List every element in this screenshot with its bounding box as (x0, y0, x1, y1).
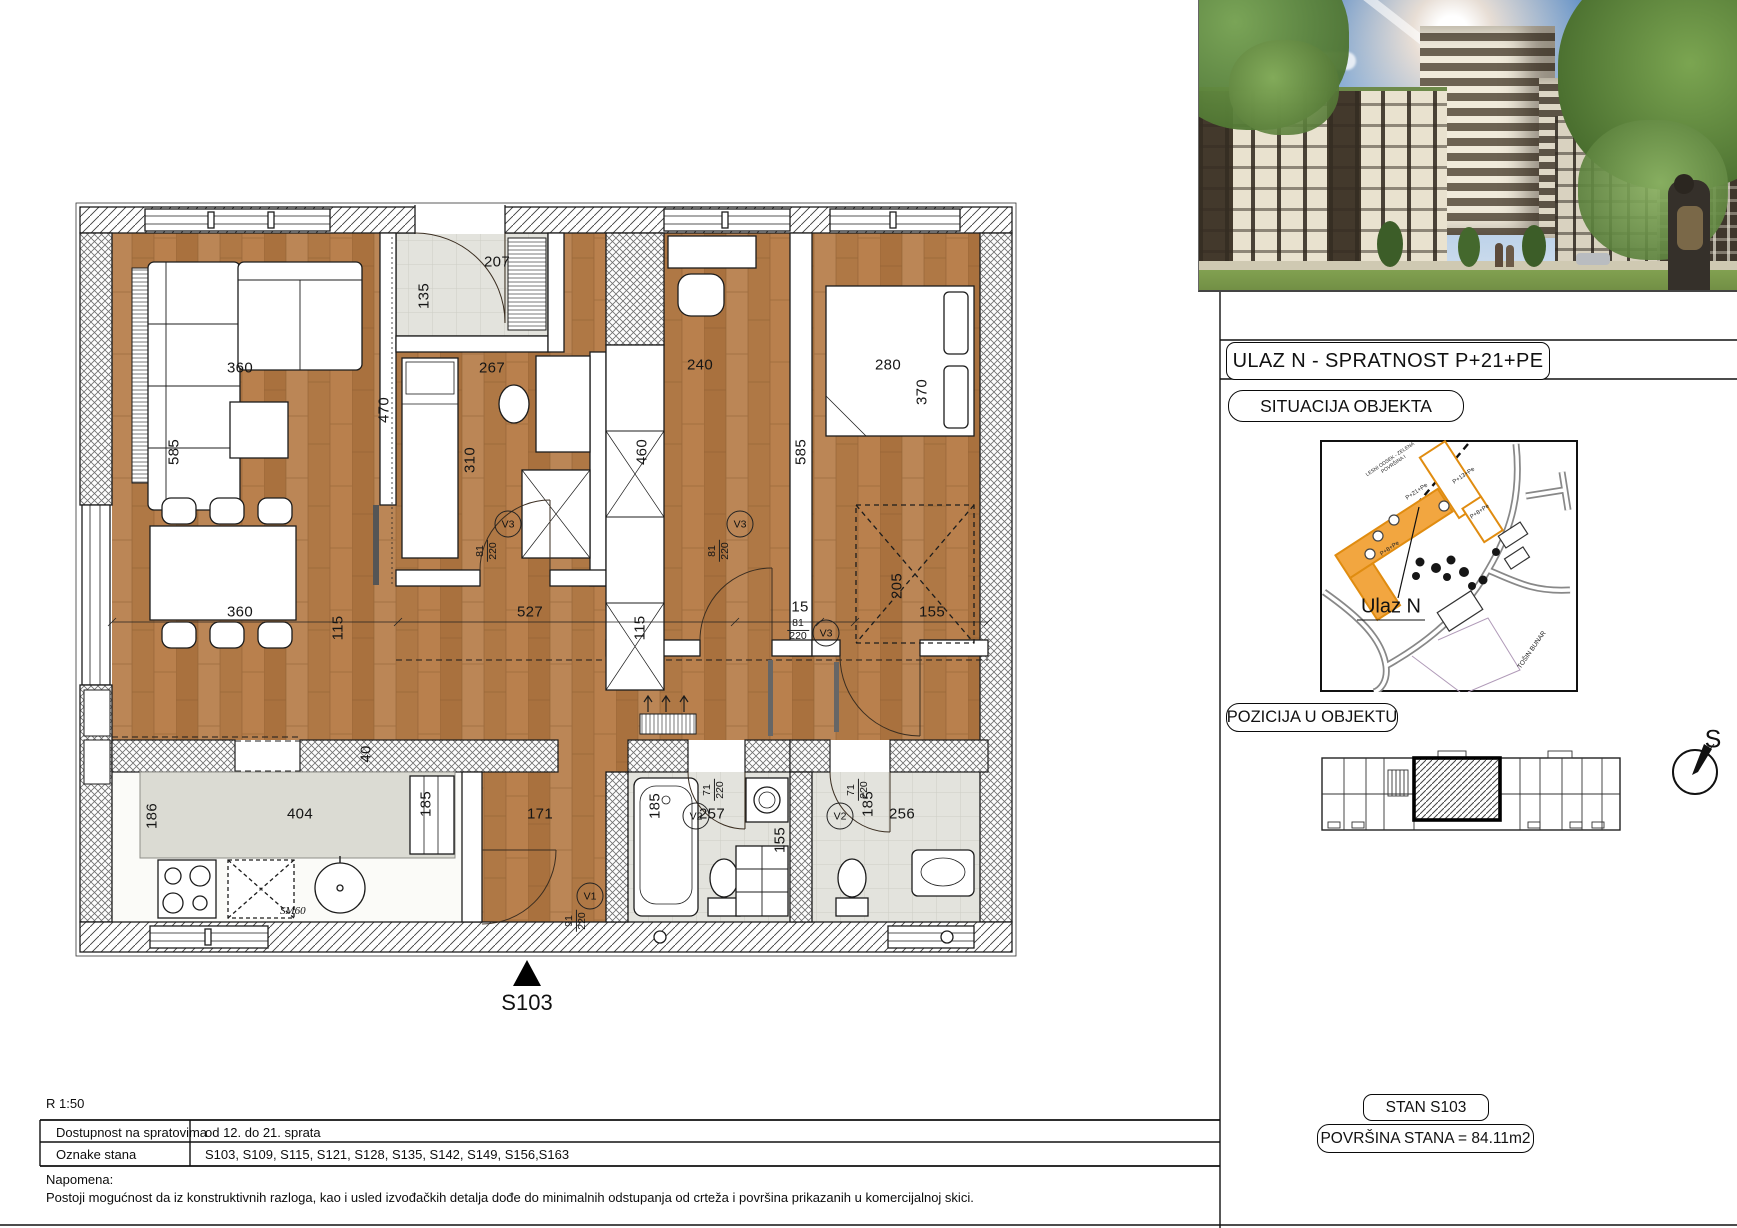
dimension-label: 360 (227, 604, 253, 621)
dimension-label: 310 (462, 447, 479, 473)
povrsina-label: POVRŠINA STANA = 84.11m2 (1317, 1124, 1534, 1153)
table-row1-label: Dostupnost na spratovima (56, 1125, 207, 1140)
dimension-label: 15 (791, 599, 808, 616)
car (1576, 253, 1610, 265)
backpack (1677, 206, 1703, 250)
dimension-label: 280 (875, 357, 901, 374)
table-row2-value: S103, S109, S115, S121, S128, S135, S142… (205, 1147, 569, 1162)
dimension-label: 135 (416, 283, 433, 309)
door-tag-v3: V3 (495, 511, 522, 538)
dimension-label: 527 (517, 604, 543, 621)
appliance-label: SM60 (280, 905, 306, 917)
dimension-label: 155 (919, 604, 945, 621)
door-size-label: 81220 (475, 540, 499, 562)
dimension-label: 360 (227, 360, 253, 377)
dimension-label: 185 (418, 791, 435, 817)
door-size-label: 81220 (707, 540, 731, 562)
dimension-label: 585 (166, 439, 183, 465)
stan-label: STAN S103 (1363, 1094, 1489, 1121)
tree-icon (1229, 40, 1339, 135)
dimension-label: 186 (144, 803, 161, 829)
unit-marker-label: S103 (501, 990, 552, 1016)
entrance-title: ULAZ N - SPRATNOST P+21+PE (1226, 342, 1550, 380)
drawing-sheet: 2071353602672402803704705853104605853605… (0, 0, 1737, 1228)
dimension-label: 404 (287, 806, 313, 823)
door-tag-v1: V1 (577, 883, 604, 910)
door-tag-v2: V2 (683, 803, 710, 830)
door-size-label: 91220 (564, 910, 588, 932)
dimension-label: 585 (793, 439, 810, 465)
door-tag-v3: V3 (813, 620, 840, 647)
table-row2-label: Oznake stana (56, 1147, 136, 1162)
door-tag-v2: V2 (827, 803, 854, 830)
building-photo (1198, 0, 1737, 292)
street-tree (1458, 227, 1480, 267)
position-diagram (1318, 748, 1630, 842)
dimension-label: 205 (889, 573, 906, 599)
compass-letter: S (1705, 726, 1722, 755)
dimension-label: 460 (634, 439, 651, 465)
dimension-label: 256 (889, 806, 915, 823)
scale-label: R 1:50 (46, 1096, 84, 1111)
dimension-label: 207 (484, 254, 510, 271)
dimension-label: 155 (772, 827, 789, 853)
person-small (1506, 245, 1514, 267)
person-small (1495, 243, 1503, 267)
dimension-label: 240 (687, 357, 713, 374)
dimension-label: 470 (376, 397, 393, 423)
dimension-label: 171 (527, 806, 553, 823)
dimension-label: 370 (914, 379, 931, 405)
door-size-label: 71220 (846, 779, 870, 801)
situation-map (1320, 440, 1578, 692)
dimension-layer: 2071353602672402803704705853104605853605… (0, 0, 1120, 1070)
ulaz-pointer-label: Ulaz N (1357, 596, 1425, 621)
note-text: Postoji mogućnost da iz konstruktivnih r… (46, 1190, 1146, 1205)
situacija-label: SITUACIJA OBJEKTA (1228, 390, 1464, 422)
street-tree (1377, 221, 1403, 267)
highlighted-unit (1414, 758, 1500, 820)
dimension-label: 267 (479, 360, 505, 377)
dimension-label: 185 (647, 793, 664, 819)
note-title: Napomena: (46, 1172, 113, 1187)
dimension-label: 115 (632, 616, 649, 641)
door-size-label: 71220 (702, 779, 726, 801)
door-tag-v3: V3 (727, 511, 754, 538)
door-size-label: 81220 (787, 618, 809, 642)
pozicija-label: POZICIJA U OBJEKTU (1226, 703, 1398, 732)
dimension-label: 40 (358, 745, 375, 762)
dimension-label: 115 (330, 616, 347, 641)
table-row1-value: od 12. do 21. sprata (205, 1125, 321, 1140)
